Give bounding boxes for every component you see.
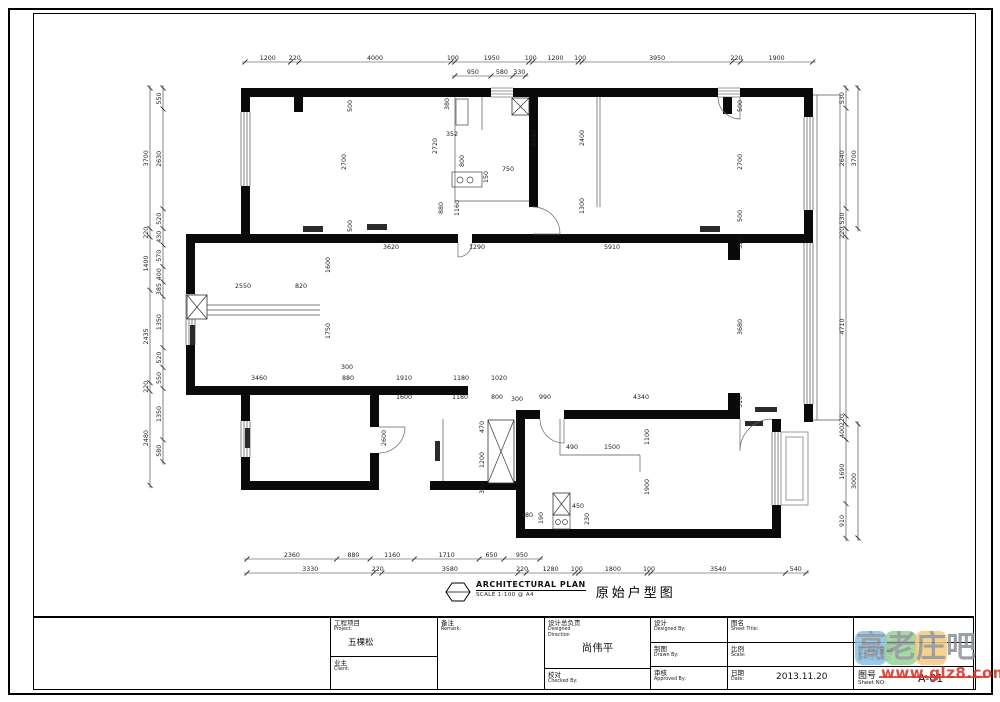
wall — [241, 88, 250, 112]
dim-chain-label: 580 — [496, 69, 508, 76]
cell-project-client: 工程项目 Project: 五棵松 业主 Client: — [330, 618, 437, 690]
dim-label: 150 — [483, 171, 490, 183]
dim-chain-label: 910 — [839, 515, 846, 527]
dim-chain-label: 2435 — [143, 328, 150, 344]
caption-title-cn: 原始户型图 — [596, 582, 676, 601]
dim-chain-label: 550 — [156, 92, 163, 104]
dim-label: 1910 — [396, 375, 412, 382]
dim-chain-label: 520 — [156, 352, 163, 364]
dim-chain-label: 540 — [790, 566, 802, 573]
dim-chain-label: 400 — [839, 426, 846, 438]
dim-chain-label: 100 — [525, 55, 537, 62]
wall — [370, 395, 379, 427]
dim-chain-label: 880 — [347, 552, 359, 559]
dim-label: 450 — [572, 503, 584, 510]
dim-chain-label: 530 — [839, 213, 846, 225]
dim-label: 500 — [347, 220, 354, 232]
project-no-label-en: Project NO: — [861, 657, 894, 663]
dim-chain-label: 430 — [156, 231, 163, 243]
wall — [804, 404, 813, 422]
caption-text-block: ARCHITECTURAL PLAN SCALE 1:100 @ A4 — [476, 580, 586, 598]
radiator — [245, 428, 250, 448]
wall — [804, 88, 813, 117]
dim-label: 2720 — [432, 138, 439, 154]
radiator — [435, 441, 440, 461]
fixture — [456, 99, 468, 125]
drawn-label: 制图 — [654, 646, 679, 653]
dim-chain-label: 1950 — [484, 55, 500, 62]
window-opening — [241, 112, 250, 186]
floor-plan-svg: 3620129059102550820160017503003460880191… — [0, 0, 1000, 614]
wall — [245, 88, 491, 97]
sheet-no-label-en: Sheet NO: — [858, 681, 886, 687]
dim-label: 1020 — [491, 375, 507, 382]
dim-chain-label: 1800 — [605, 566, 621, 573]
radiator — [367, 224, 387, 230]
wall — [723, 97, 732, 114]
radiator — [190, 325, 195, 345]
wall — [186, 386, 468, 395]
dim-label: 1750 — [325, 323, 332, 339]
dim-chain-label: 220 — [730, 55, 742, 62]
wall — [516, 529, 781, 538]
dim-label: 1500 — [604, 444, 620, 451]
wall — [241, 395, 250, 421]
dim-chain-label: 3540 — [710, 566, 726, 573]
dim-label: 480 — [521, 512, 533, 519]
wall — [186, 234, 458, 243]
design-director-label: 设计总负责 — [548, 620, 650, 627]
scale-label: 比例 — [731, 646, 746, 653]
dim-chain-label: 220 — [143, 227, 150, 239]
dim-label: 300 — [479, 482, 486, 494]
dim-chain-label: 220 — [372, 566, 384, 573]
window-opening — [804, 117, 813, 210]
dim-chain-label: 2640 — [839, 150, 846, 166]
dim-chain-label: 4710 — [839, 318, 846, 334]
cell-remark: 备注 Remark: — [437, 618, 544, 690]
fixture-circle — [457, 177, 463, 183]
dim-chain-label: 100 — [643, 566, 655, 573]
caption-hexagon-icon — [445, 582, 471, 602]
bay-window — [786, 437, 803, 500]
dim-label: 470 — [479, 421, 486, 433]
fixture-circle — [563, 520, 568, 525]
dim-chain-label: 520 — [156, 213, 163, 225]
dim-chain-label: 385 — [156, 283, 163, 295]
cell-signatures: 设计 Designed By: 制图 Drawn By: 审核 Approved… — [650, 618, 727, 690]
dim-label: 1600 — [396, 394, 412, 401]
dim-label: 1100 — [644, 429, 651, 445]
dim-chain-label: 1200 — [260, 55, 276, 62]
wall — [294, 97, 303, 112]
drawing-sheet: 3620129059102550820160017503003460880191… — [0, 0, 1000, 702]
dim-chain-label: 220 — [143, 381, 150, 393]
dim-label: 3680 — [737, 319, 744, 335]
dim-chain-label: 2480 — [143, 430, 150, 446]
dim-chain-label: 3000 — [851, 473, 858, 489]
title-block: 北京雕琢空间室内设计工作室 www.yangkepeng.com 精雕细琢 只为… — [33, 616, 974, 690]
dim-chain-label: 1280 — [543, 566, 559, 573]
project-value: 五棵松 — [348, 636, 437, 648]
dim-label: 2440 — [531, 130, 538, 146]
dim-chain-label: 950 — [467, 69, 479, 76]
dim-chain-label: 580 — [156, 445, 163, 457]
dim-chain-label: 220 — [516, 566, 528, 573]
dim-label: 1600 — [325, 257, 332, 273]
sheet-title-label-en: Sheet Title: — [731, 627, 853, 633]
dim-chain-label: 1200 — [547, 55, 563, 62]
cell-title-scale-date: 图名 Sheet Title: 比例 Scale: 日期 Date: 2013.… — [727, 618, 853, 690]
cell-numbers: 工程编号 Project NO: 图号 Sheet NO: A-01 — [853, 618, 974, 690]
window-opening — [718, 88, 740, 97]
project-label: 工程项目 — [334, 620, 437, 627]
design-director-value: 尚伟平 — [545, 640, 650, 655]
client-label-en: Client: — [334, 667, 350, 673]
dim-label: 880 — [438, 202, 445, 214]
dim-label: 750 — [502, 166, 514, 173]
checked-label-en: Checked By: — [548, 679, 578, 685]
project-no-block: 工程编号 Project NO: — [858, 644, 894, 663]
designed-label: 设计 — [654, 620, 727, 627]
drawn-label-en: Drawn By: — [654, 653, 679, 659]
designed-label-en: Designed By: — [654, 627, 727, 633]
dim-label: 1160 — [454, 200, 461, 216]
date-label-en: Date: — [731, 677, 744, 683]
dim-label: 230 — [584, 513, 591, 525]
window-opening — [491, 88, 513, 97]
dim-chain-label: 220 — [839, 227, 846, 239]
dim-label: 2700 — [737, 154, 744, 170]
dim-label: 1300 — [579, 198, 586, 214]
dim-chain-label: 3580 — [442, 566, 458, 573]
radiator — [303, 226, 323, 232]
dim-label: 880 — [342, 375, 354, 382]
dim-label: 300 — [511, 396, 523, 403]
dim-chain-label: 1710 — [439, 552, 455, 559]
date-label: 日期 — [731, 670, 744, 677]
window-opening — [804, 243, 813, 404]
dim-chain-label: 100 — [447, 55, 459, 62]
dim-chain-label: 650 — [486, 552, 498, 559]
wall — [564, 410, 728, 419]
dim-label: 800 — [459, 155, 466, 167]
wall — [472, 234, 813, 243]
dim-label: 820 — [295, 283, 307, 290]
design-director-label-en2: Direction — [548, 633, 650, 639]
dim-label: 352 — [446, 131, 458, 138]
wall — [186, 243, 195, 294]
dim-label: 2600 — [381, 430, 388, 446]
dim-chain-label: 3700 — [143, 150, 150, 166]
dim-chain-label: 1900 — [769, 55, 785, 62]
radiator — [745, 421, 763, 426]
door-swing — [533, 207, 560, 234]
dim-label: 2700 — [341, 154, 348, 170]
sheet-no-value: A-01 — [918, 672, 943, 685]
fixture-circle — [467, 177, 473, 183]
dim-chain-label: 1350 — [156, 406, 163, 422]
project-label-en: Project: — [334, 627, 437, 633]
remark-label: 备注 — [441, 620, 544, 627]
dim-label: 1180 — [453, 375, 469, 382]
bay-window — [781, 432, 808, 505]
plan-caption: ARCHITECTURAL PLAN SCALE 1:100 @ A4 原始户型… — [445, 580, 676, 602]
scale-label-en: Scale: — [731, 653, 746, 659]
wall — [370, 453, 379, 490]
client-label: 业主 — [334, 660, 350, 667]
dim-label: 500 — [737, 100, 744, 112]
caption-title-en: ARCHITECTURAL PLAN — [476, 580, 586, 591]
dim-label: 1200 — [479, 452, 486, 468]
dim-chain-label: 1400 — [143, 256, 150, 272]
dim-chain-label: 1690 — [839, 464, 846, 480]
dim-label: 800 — [491, 394, 503, 401]
dim-chain-label: 330 — [513, 69, 525, 76]
dim-chain-label: 550 — [156, 372, 163, 384]
checked-label: 校对 — [548, 672, 578, 679]
dim-label: 1290 — [469, 244, 485, 251]
radiator — [700, 226, 720, 232]
date-value: 2013.11.20 — [776, 672, 828, 682]
wall — [740, 88, 813, 97]
dim-chain-label: 400 — [156, 268, 163, 280]
caption-scale-note: SCALE 1:100 @ A4 — [476, 592, 586, 598]
fixture-circle — [556, 520, 561, 525]
dim-chain-label: 220 — [289, 55, 301, 62]
dim-chain-label: 3330 — [302, 566, 318, 573]
dim-label: 500 — [737, 210, 744, 222]
dim-chain-label: 4000 — [367, 55, 383, 62]
dim-label: 500 — [347, 100, 354, 112]
dim-chain-label: 3950 — [649, 55, 665, 62]
dim-chain-label: 220 — [839, 414, 846, 426]
dim-chain-label: 1160 — [384, 552, 400, 559]
dim-label: 990 — [539, 394, 551, 401]
remark-label-en: Remark: — [441, 627, 544, 633]
cell-design-director: 设计总负责 Designed Direction 尚伟平 校对 Checked … — [544, 618, 650, 690]
dim-chain-label: 530 — [839, 92, 846, 104]
radiator — [755, 407, 777, 412]
dim-label: 2550 — [235, 283, 251, 290]
wall — [529, 97, 538, 207]
dim-chain-label: 570 — [156, 250, 163, 262]
dim-label: 3460 — [251, 375, 267, 382]
dim-label: 4340 — [633, 394, 649, 401]
dim-chain-label: 2360 — [284, 552, 300, 559]
dim-chain-label: 100 — [571, 566, 583, 573]
wall — [513, 88, 718, 97]
dim-label: 1900 — [644, 479, 651, 495]
dim-chain-label: 2630 — [156, 151, 163, 167]
sheet-title-label: 图名 — [731, 620, 853, 627]
dim-label: 2400 — [579, 130, 586, 146]
door-swing — [540, 419, 564, 443]
dim-label: 380 — [444, 98, 451, 110]
dim-label: 510 — [737, 396, 744, 408]
dim-chain-label: 1350 — [156, 314, 163, 330]
dim-chain-label: 100 — [574, 55, 586, 62]
dim-chain-label: 3700 — [851, 150, 858, 166]
dim-label: 300 — [341, 364, 353, 371]
dim-label: 490 — [566, 444, 578, 451]
dim-label: 520 — [737, 237, 744, 249]
dim-label: 5910 — [604, 244, 620, 251]
approved-label-en: Approved By: — [654, 677, 686, 683]
dim-label: 190 — [538, 512, 545, 524]
sheet-no-block: 图号 Sheet NO: — [858, 668, 886, 687]
dim-label: 1180 — [452, 394, 468, 401]
dim-chain-label: 950 — [516, 552, 528, 559]
wall — [241, 481, 379, 490]
approved-label: 审核 — [654, 670, 686, 677]
window-opening — [772, 432, 781, 505]
dim-label: 3620 — [383, 244, 399, 251]
